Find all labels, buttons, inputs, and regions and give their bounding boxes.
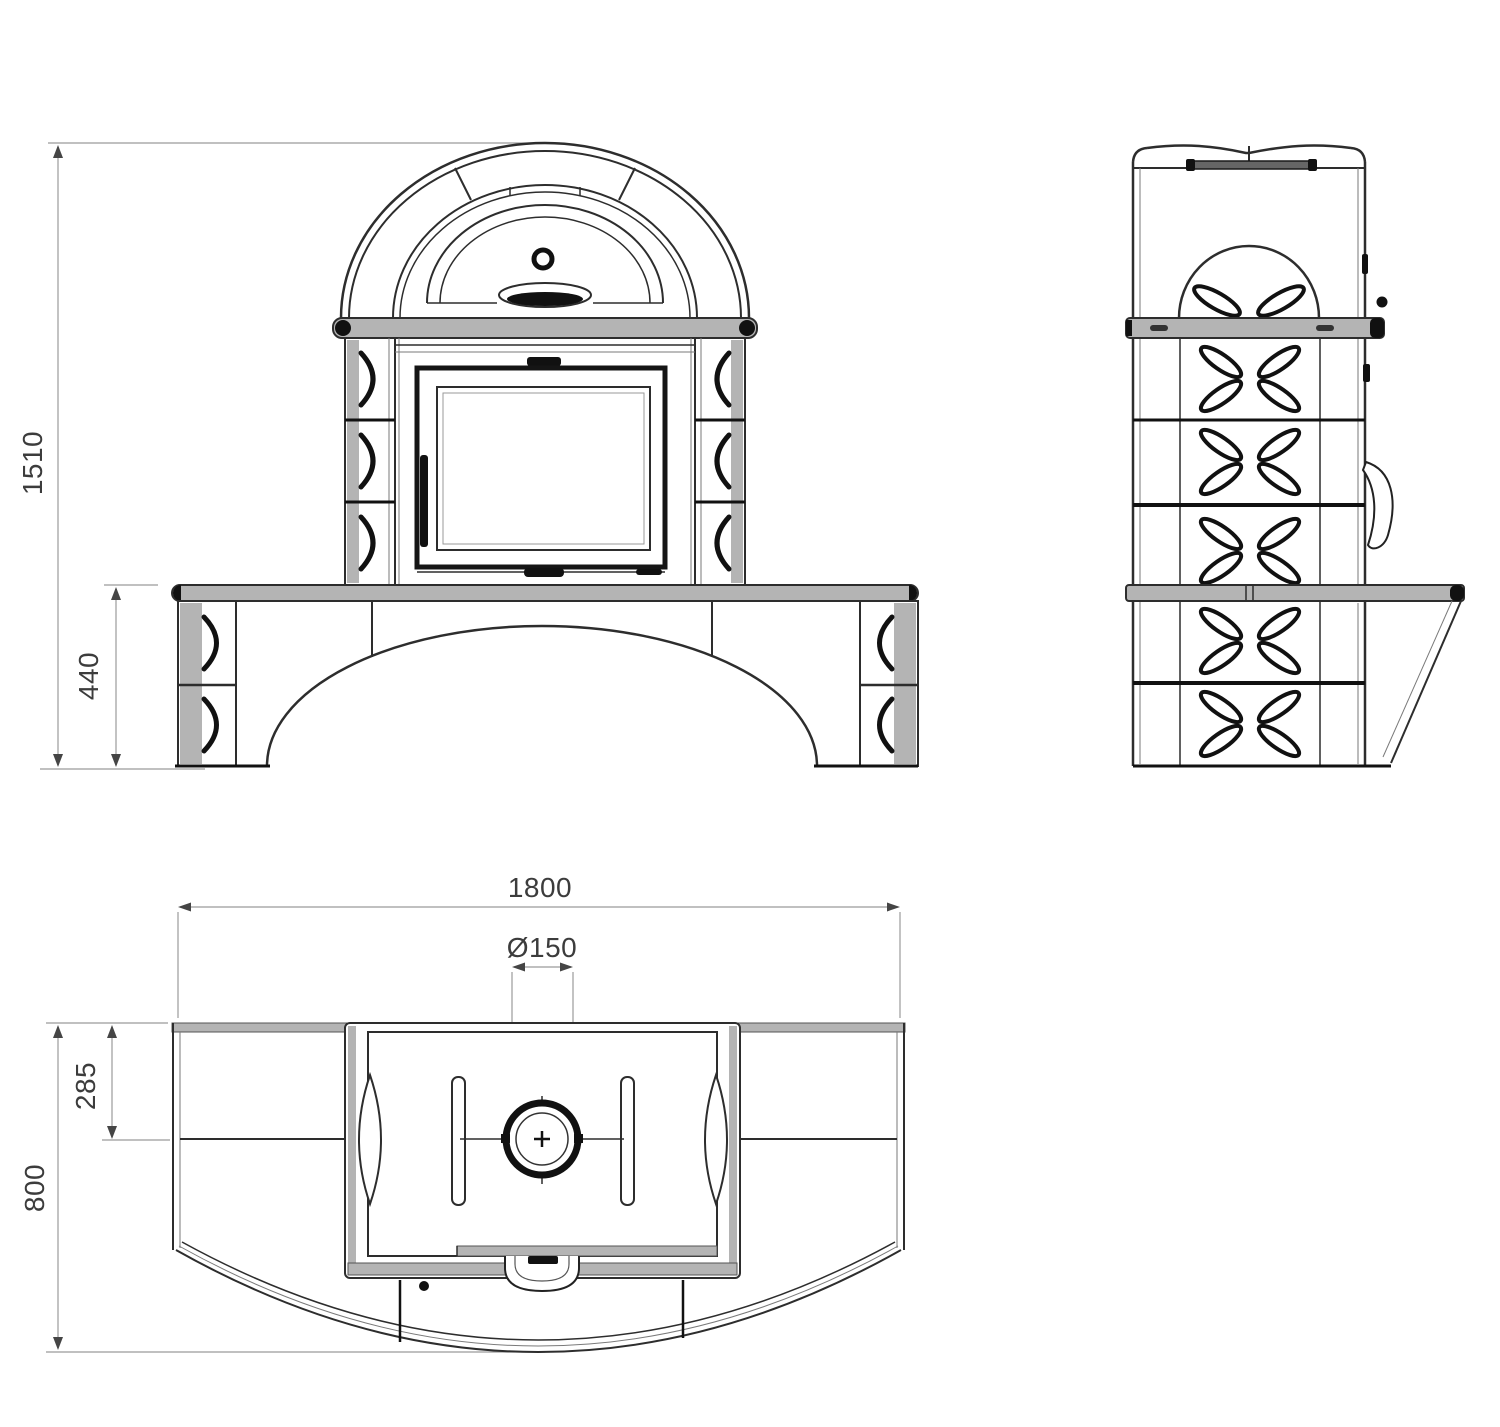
dim-label-overall-width: 1800 [508,872,572,903]
hinge-tab [1362,254,1368,274]
left-leg [178,601,236,766]
side-top [1133,146,1365,171]
dim-label-flue-diameter: Ø150 [507,932,578,963]
front-view: 1510 440 [17,143,918,769]
side-tile-rosettes [1197,342,1303,761]
plan-right-strip [621,1077,634,1205]
arch-knob-icon [534,250,552,268]
front-right-column [695,338,745,585]
latch-tab [1363,364,1370,382]
bench-top [172,585,918,601]
dim-label-overall-height: 1510 [17,431,48,495]
damper-bar [1192,161,1312,169]
door-handle [420,455,428,547]
side-view [1126,146,1464,766]
right-leg [860,601,918,766]
dim-label-top-depth: 285 [70,1062,101,1110]
plan-pin [419,1281,429,1291]
seat-front-slope [1391,601,1461,763]
plan-stove-body [345,1023,740,1342]
side-mantel [1126,254,1388,382]
arch-joint-left [455,168,471,200]
arch-joint-right [619,168,635,200]
front-base [175,601,918,766]
side-knob-icon [1377,297,1388,308]
front-arch [341,143,749,318]
side-door-handle [1363,462,1393,548]
front-left-column [345,338,395,585]
firebox-door [395,338,695,585]
drawing-canvas: 1510 440 [0,0,1500,1427]
stove-technical-drawing: 1510 440 [0,0,1500,1427]
plan-view: 1800 Ø150 285 800 [19,872,905,1352]
plan-left-strip [452,1077,465,1205]
plan-front-handle [505,1256,579,1291]
dim-label-overall-depth: 800 [19,1164,50,1212]
base-arch [267,626,817,766]
mantel-shelf [333,318,757,338]
dim-285: 285 [70,1025,170,1140]
dim-label-bench-height: 440 [73,652,104,700]
dim-440: 440 [73,585,158,767]
door-glass [437,387,650,550]
door-latch [527,357,561,366]
side-dome [1179,246,1319,321]
